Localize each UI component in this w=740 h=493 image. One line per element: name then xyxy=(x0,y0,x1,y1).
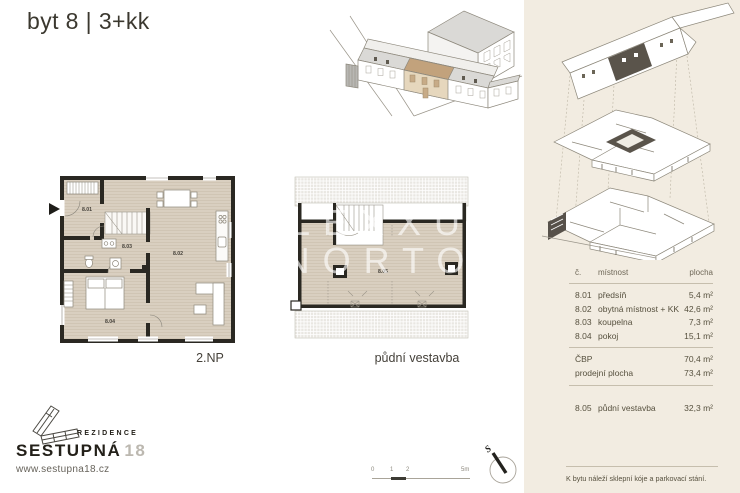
scale-tick-1: 1 xyxy=(390,467,393,473)
room-label-805: 8.05 xyxy=(378,269,388,275)
area-table-extra: 8.05 půdní vestavba 32,3 m² xyxy=(569,402,713,416)
row-room: obytná místnost + KK xyxy=(598,303,684,317)
header-room: místnost xyxy=(598,268,689,278)
table-row: 8.01 předsíň 5,4 m² xyxy=(569,289,713,303)
area-table: č. místnost plocha 8.01 předsíň 5,4 m² 8… xyxy=(569,268,713,416)
entry-arrow-icon xyxy=(49,203,60,215)
table-row-attic: 8.05 půdní vestavba 32,3 m² xyxy=(569,402,713,416)
roof-slab xyxy=(562,3,734,99)
scale-tick-5m: 5m xyxy=(461,467,469,473)
ground-floor-slab xyxy=(548,188,714,260)
row-room: pokoj xyxy=(598,330,684,344)
landing-strip xyxy=(301,203,466,221)
summary-label: ČBP xyxy=(569,352,598,366)
row-number: 8.03 xyxy=(569,316,598,330)
attic-floor xyxy=(301,221,466,307)
info-panel: č. místnost plocha 8.01 předsíň 5,4 m² 8… xyxy=(524,0,740,493)
row-area: 32,3 m² xyxy=(684,402,713,416)
logo-name-text: SESTUPNÁ xyxy=(16,441,121,460)
table-row: 8.04 pokoj 15,1 m² xyxy=(569,330,713,344)
scale-bar: 0 1 2 5m xyxy=(370,467,474,483)
middle-floor-slab xyxy=(554,110,710,181)
logo-number: 18 xyxy=(124,441,146,460)
row-number: 8.04 xyxy=(569,330,598,344)
area-table-header: č. místnost plocha xyxy=(569,268,713,284)
room-label-804: 8.04 xyxy=(105,319,115,325)
plan-label-2np: 2.NP xyxy=(180,351,240,365)
row-area: 7,3 m² xyxy=(689,316,713,330)
table-row: 8.03 koupelna 7,3 m² xyxy=(569,316,713,330)
row-room: předsíň xyxy=(598,289,689,303)
site-axonometric-drawing xyxy=(328,4,524,118)
north-indicator: S xyxy=(482,437,524,489)
summary-row-cbp: ČBP 70,4 m² xyxy=(569,352,713,366)
row-number: 8.05 xyxy=(569,402,598,416)
room-label-801: 8.01 xyxy=(82,207,92,213)
brochure-page: byt 8 | 3+kk xyxy=(0,0,740,493)
room-label-803: 8.03 xyxy=(122,244,132,250)
row-area: 5,4 m² xyxy=(689,289,713,303)
roof-hatch-top xyxy=(295,177,468,206)
compass-north-label: S xyxy=(483,444,493,455)
room-label-802: 8.02 xyxy=(173,251,183,257)
scale-tick-0: 0 xyxy=(371,467,374,473)
scale-segment xyxy=(391,477,406,481)
row-room: půdní vestavba xyxy=(598,402,684,416)
area-table-summary: ČBP 70,4 m² prodejní plocha 73,4 m² xyxy=(569,347,713,386)
attic-staircase xyxy=(336,205,383,245)
apartment-note: K bytu náleží sklepní kóje a parkovací s… xyxy=(566,466,718,483)
summary-label: prodejní plocha xyxy=(569,366,649,380)
staircase xyxy=(105,212,150,234)
plan-label-attic: půdní vestavba xyxy=(352,351,482,365)
dormer-notch xyxy=(291,301,301,310)
row-room: koupelna xyxy=(598,316,689,330)
page-title: byt 8 | 3+kk xyxy=(27,8,150,35)
header-area: plocha xyxy=(689,268,713,278)
summary-area: 73,4 m² xyxy=(684,366,713,380)
floor-plan-2np: 8.01 8.02 8.03 8.04 xyxy=(48,165,240,347)
logo-tagline: REZIDENCE xyxy=(77,430,138,437)
scale-line xyxy=(372,478,470,479)
exploded-axonometric-drawing xyxy=(524,2,740,260)
row-number: 8.02 xyxy=(569,303,598,317)
row-area: 42,6 m² xyxy=(684,303,713,317)
website-url: www.sestupna18.cz xyxy=(16,464,109,475)
row-area: 15,1 m² xyxy=(684,330,713,344)
floor-plan-attic: 8.05 xyxy=(288,165,473,343)
compass-needle xyxy=(493,453,506,473)
roof-hatch-bottom xyxy=(295,311,468,338)
summary-area: 70,4 m² xyxy=(684,352,713,366)
summary-row-sales: prodejní plocha 73,4 m² xyxy=(569,366,713,380)
row-number: 8.01 xyxy=(569,289,598,303)
table-row: 8.02 obytná místnost + KK 42,6 m² xyxy=(569,303,713,317)
logo-name: SESTUPNÁ18 xyxy=(16,441,146,461)
area-table-body: 8.01 předsíň 5,4 m² 8.02 obytná místnost… xyxy=(569,289,713,343)
scale-tick-2: 2 xyxy=(406,467,409,473)
header-number: č. xyxy=(569,268,598,278)
